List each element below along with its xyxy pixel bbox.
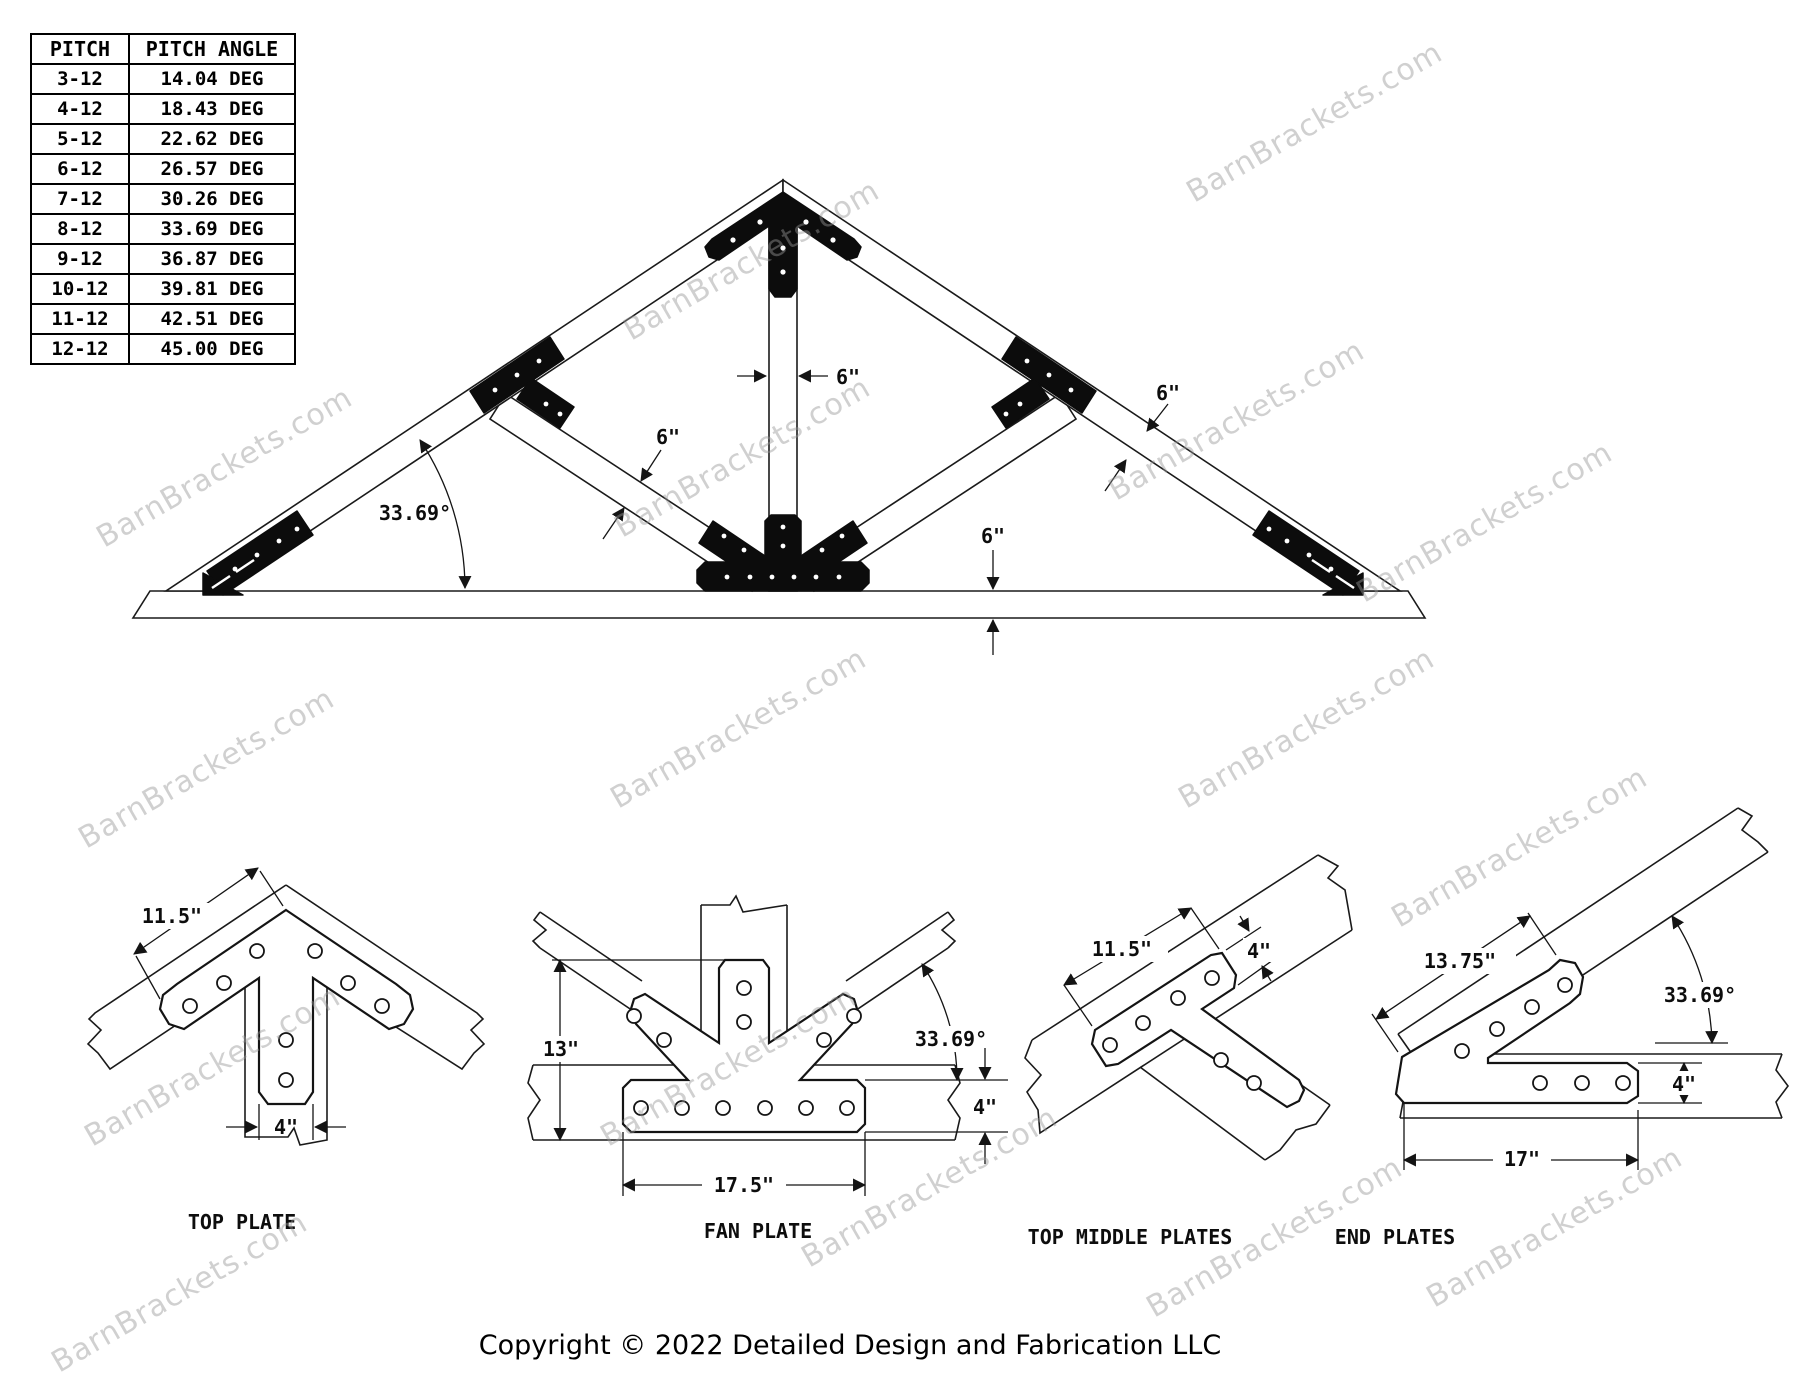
pitch-cell: 8-12 — [31, 214, 129, 244]
angle-cell: 26.57 DEG — [129, 154, 295, 184]
right-end-plate — [1253, 511, 1363, 595]
pitch-cell: 5-12 — [31, 124, 129, 154]
dim-fan-plate-height: 13" — [543, 1037, 579, 1061]
dim-top-middle-bar-width: 4" — [1247, 939, 1271, 963]
dim-pitch-angle: 33.69° — [379, 501, 451, 525]
dim-top-plate-leg-width: 4" — [274, 1115, 298, 1139]
angle-cell: 22.62 DEG — [129, 124, 295, 154]
table-row: 11-12 42.51 DEG — [31, 304, 295, 334]
pitch-cell: 10-12 — [31, 274, 129, 304]
pitch-cell: 3-12 — [31, 64, 129, 94]
pitch-cell: 12-12 — [31, 334, 129, 364]
table-row: 5-12 22.62 DEG — [31, 124, 295, 154]
pitch-angle-table: PITCH PITCH ANGLE 3-12 14.04 DEG 4-12 18… — [30, 33, 296, 365]
angle-cell: 14.04 DEG — [129, 64, 295, 94]
drawing-page: 6" 6" 6" 6" 33.69° — [0, 0, 1800, 1391]
table-row: 10-12 39.81 DEG — [31, 274, 295, 304]
top-plate-label: TOP PLATE — [188, 1210, 296, 1234]
angle-cell: 36.87 DEG — [129, 244, 295, 274]
top-middle-plates-label: TOP MIDDLE PLATES — [1028, 1225, 1233, 1249]
angle-cell: 45.00 DEG — [129, 334, 295, 364]
left-end-plate — [203, 511, 313, 595]
detail-top-plate: 11.5" 4" — [88, 868, 484, 1145]
table-header-row: PITCH PITCH ANGLE — [31, 34, 295, 64]
table-row: 7-12 30.26 DEG — [31, 184, 295, 214]
dim-end-plate-angle: 33.69° — [1664, 983, 1736, 1007]
dim-top-plate-wing-length: 11.5" — [142, 904, 202, 928]
angle-cell: 18.43 DEG — [129, 94, 295, 124]
table-row: 6-12 26.57 DEG — [31, 154, 295, 184]
angle-cell: 42.51 DEG — [129, 304, 295, 334]
dim-end-plate-foot-length: 17" — [1504, 1147, 1540, 1171]
fan-plate-truss — [697, 515, 869, 591]
pitch-cell: 11-12 — [31, 304, 129, 334]
copyright-text: Copyright © 2022 Detailed Design and Fab… — [0, 1330, 1700, 1361]
peak-plate — [705, 192, 861, 297]
end-plates-label: END PLATES — [1335, 1225, 1455, 1249]
table-row: 4-12 18.43 DEG — [31, 94, 295, 124]
pitch-cell: 6-12 — [31, 154, 129, 184]
detail-end-plates: 13.75" 33.69° 4" 17" — [1372, 808, 1788, 1172]
fan-plate-label: FAN PLATE — [704, 1219, 812, 1243]
pitch-angle-header: PITCH ANGLE — [129, 34, 295, 64]
detail-fan-plate: 13" 33.69° 4" 17.5" — [528, 896, 1008, 1198]
angle-cell: 30.26 DEG — [129, 184, 295, 214]
pitch-cell: 7-12 — [31, 184, 129, 214]
dim-king-post-width: 6" — [836, 365, 860, 389]
table-row: 3-12 14.04 DEG — [31, 64, 295, 94]
table-row: 12-12 45.00 DEG — [31, 334, 295, 364]
dim-rafter-width: 6" — [1156, 381, 1180, 405]
dim-fan-plate-base-height: 4" — [973, 1095, 997, 1119]
angle-cell: 33.69 DEG — [129, 214, 295, 244]
dim-web-width: 6" — [656, 425, 680, 449]
dim-fan-plate-base-length: 17.5" — [714, 1173, 774, 1197]
dim-top-middle-bar-length: 11.5" — [1092, 937, 1152, 961]
pitch-cell: 9-12 — [31, 244, 129, 274]
truss-diagram: 6" 6" 6" 6" 33.69° — [133, 180, 1425, 655]
dim-fan-plate-angle: 33.69° — [915, 1027, 987, 1051]
bottom-chord — [133, 591, 1425, 618]
table-row: 8-12 33.69 DEG — [31, 214, 295, 244]
pitch-cell: 4-12 — [31, 94, 129, 124]
dim-end-plate-foot-height: 4" — [1672, 1072, 1696, 1096]
detail-top-middle-plates: 11.5" 4" — [1025, 855, 1352, 1160]
angle-cell: 39.81 DEG — [129, 274, 295, 304]
table-row: 9-12 36.87 DEG — [31, 244, 295, 274]
dim-chord-height: 6" — [981, 524, 1005, 548]
pitch-header: PITCH — [31, 34, 129, 64]
dim-end-plate-rafter-length: 13.75" — [1424, 949, 1496, 973]
